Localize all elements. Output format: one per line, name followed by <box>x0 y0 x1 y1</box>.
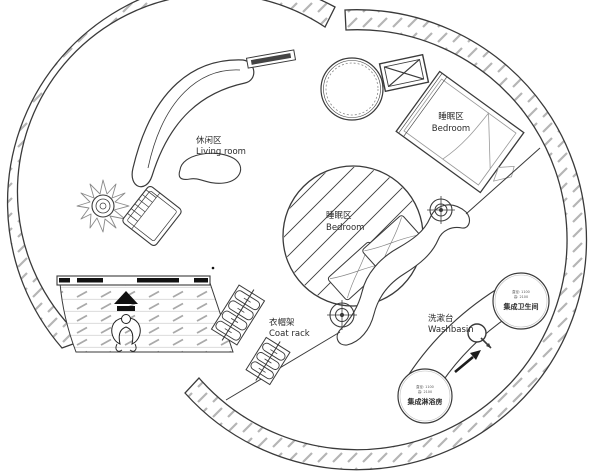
bathroom-dim-1: 直径: 1100 <box>512 289 530 294</box>
armchair <box>121 185 182 247</box>
living-room-label-en: Living room <box>196 147 246 157</box>
bedroom-center-label-en: Bedroom <box>326 223 364 233</box>
washbasin-label-en: Washbasin <box>428 325 474 335</box>
potted-plant <box>77 180 129 232</box>
shower-dim-2: 高: 2100 <box>418 389 432 394</box>
round-table <box>321 58 383 120</box>
plan-dot <box>212 267 215 270</box>
label-coat-rack: 衣帽架 Coat rack <box>269 317 310 339</box>
shower-pod <box>398 369 452 423</box>
coat-rack-label-en: Coat rack <box>269 329 310 339</box>
shower-dim-1: 直径: 1100 <box>416 384 434 389</box>
tv-unit <box>246 50 295 68</box>
bathroom-dim-2: 高: 2100 <box>514 294 528 299</box>
coat-rack-label-zh: 衣帽架 <box>269 317 295 328</box>
bedroom-upper-label-zh: 睡眠区 <box>438 112 464 122</box>
floor-plan-drawing: 休闲区 Living room 睡眠区 Bedroom 睡眠区 Bedroom … <box>0 0 611 473</box>
washbasin-label-zh: 洗漱台 <box>428 313 454 324</box>
living-room-label-zh: 休闲区 <box>196 135 222 146</box>
label-living-room: 休闲区 Living room <box>196 135 246 157</box>
sliding-door-wall <box>57 276 210 285</box>
partition-line-lower <box>226 332 340 400</box>
coffee-table <box>179 153 240 183</box>
bathroom-pod <box>493 273 549 329</box>
bedroom-upper-label-en: Bedroom <box>432 124 470 134</box>
floor-plan-canvas: 休闲区 Living room 睡眠区 Bedroom 睡眠区 Bedroom … <box>0 0 611 473</box>
ac-unit <box>380 55 429 92</box>
bedroom-center-label-zh: 睡眠区 <box>326 211 352 221</box>
bathroom-label-zh: 集成卫生间 <box>503 302 539 311</box>
coat-rack-2 <box>244 334 292 388</box>
shower-label-zh: 集成淋浴房 <box>407 397 443 406</box>
entrance-deck <box>60 283 233 352</box>
